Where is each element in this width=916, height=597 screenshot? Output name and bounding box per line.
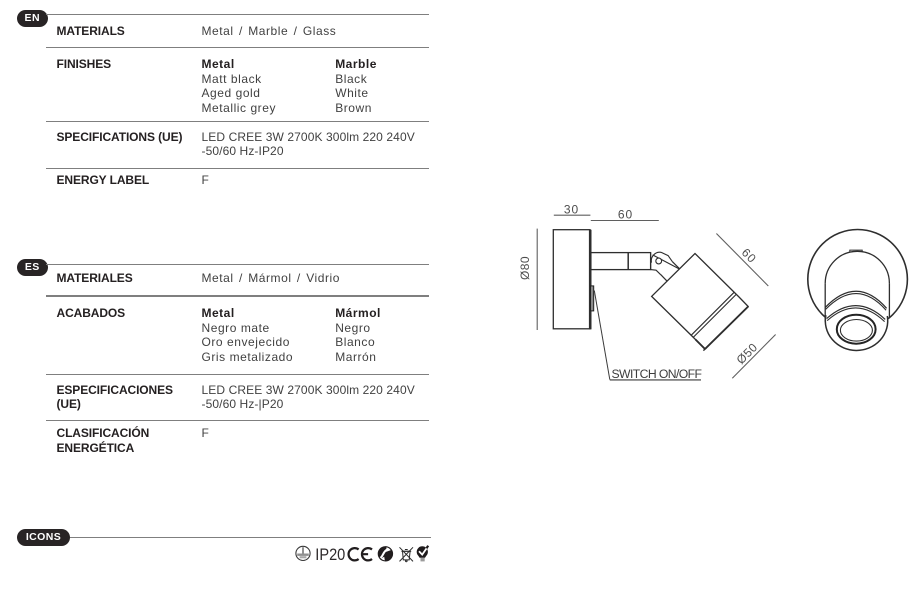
svg-text:60: 60: [618, 208, 633, 222]
svg-text:Ø80: Ø80: [518, 256, 532, 280]
svg-text:30: 30: [564, 202, 579, 216]
svg-text:60: 60: [739, 245, 760, 266]
svg-text:Ø50: Ø50: [734, 340, 761, 367]
svg-text:IP20: IP20: [315, 546, 345, 564]
svg-text:SWITCH ON/OFF: SWITCH ON/OFF: [612, 367, 703, 381]
